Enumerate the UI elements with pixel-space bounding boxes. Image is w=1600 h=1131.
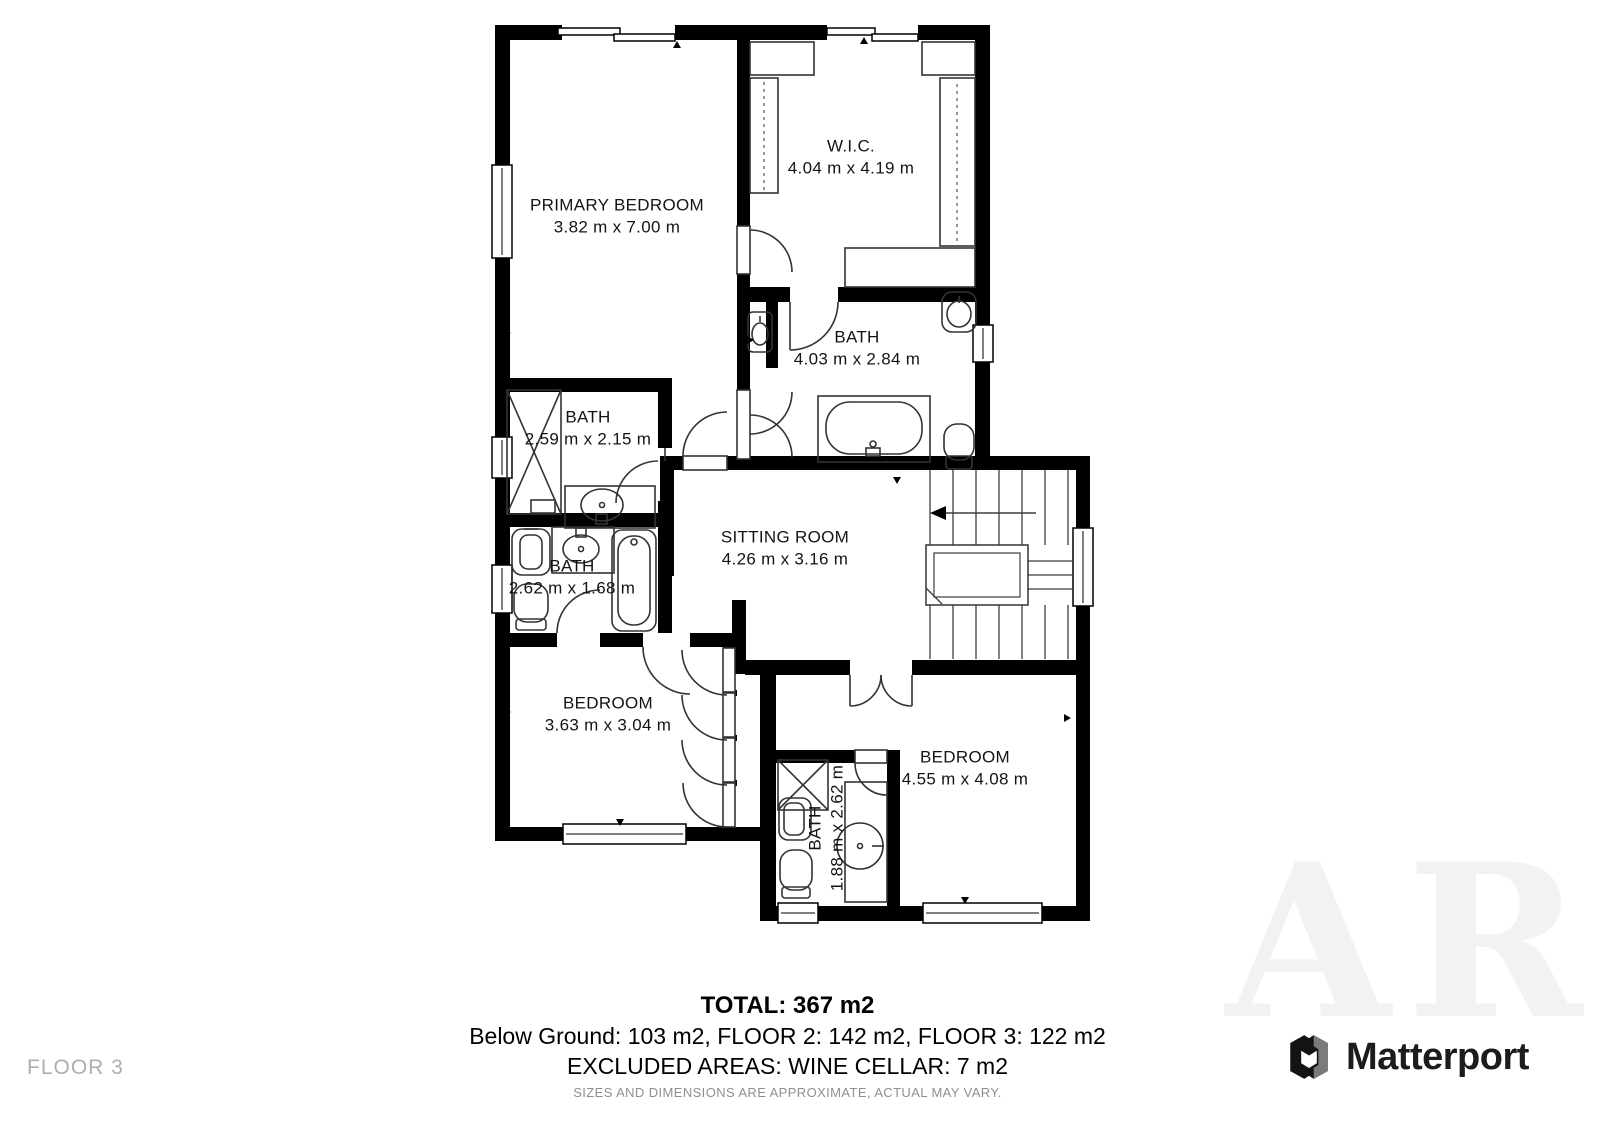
room-name: BATH (509, 555, 635, 577)
door-ensuite-bath (855, 750, 887, 795)
floor-number-label: FLOOR 3 (27, 1056, 124, 1080)
total-area-text: TOTAL: 367 m2 (0, 992, 1575, 1020)
closet-doors-bedroom-left (682, 648, 735, 827)
window-bath-right (973, 325, 993, 362)
room-dims: 2.59 m x 2.15 m (525, 428, 651, 450)
sliding-door-primary-top (558, 28, 675, 41)
room-label-bath-small: BATH 2.62 m x 1.68 m (509, 555, 635, 599)
bathtub-icon-main (818, 396, 930, 462)
room-name: BEDROOM (545, 692, 671, 714)
door-bath-shower-room (616, 448, 665, 503)
window-primary-left (492, 165, 512, 258)
room-label-bath-shower: BATH 2.59 m x 2.15 m (525, 406, 651, 450)
room-dims: 4.26 m x 3.16 m (721, 548, 849, 570)
stairs-direction-arrow (930, 506, 1036, 520)
door-wic (737, 226, 792, 274)
floor-plan-page: ARE (0, 0, 1600, 1131)
room-name: BATH (804, 765, 826, 891)
room-dims: 1.88 m x 2.62 m (826, 765, 848, 891)
double-door-bath-main (737, 390, 792, 459)
room-name: SITTING ROOM (721, 526, 849, 548)
room-label-primary-bedroom: PRIMARY BEDROOM 3.82 m x 7.00 m (530, 194, 704, 238)
room-name: W.I.C. (788, 135, 914, 157)
staircase (926, 470, 1074, 659)
disclaimer-text: SIZES AND DIMENSIONS ARE APPROXIMATE, AC… (0, 1085, 1575, 1100)
matterport-logo: Matterport (1284, 1032, 1529, 1082)
room-name: BATH (794, 326, 920, 348)
door-hall-to-sitting (683, 412, 727, 470)
room-dims: 4.55 m x 4.08 m (902, 768, 1028, 790)
window-bedroom-right-bottom (923, 903, 1042, 923)
double-door-bedroom-right (850, 675, 912, 706)
room-dims: 3.63 m x 3.04 m (545, 714, 671, 736)
window-bedroom-left-bottom (563, 824, 686, 844)
room-label-wic: W.I.C. 4.04 m x 4.19 m (788, 135, 914, 179)
window-stairs-right (1073, 528, 1093, 606)
matterport-logo-icon (1284, 1032, 1334, 1082)
room-name: BATH (525, 406, 651, 428)
room-dims: 4.03 m x 2.84 m (794, 348, 920, 370)
room-dims: 2.62 m x 1.68 m (509, 577, 635, 599)
room-name: PRIMARY BEDROOM (530, 194, 704, 216)
counter-bath-4 (845, 782, 887, 902)
room-label-bedroom-left: BEDROOM 3.63 m x 3.04 m (545, 692, 671, 736)
matterport-wordmark: Matterport (1346, 1036, 1529, 1079)
room-label-bedroom-right: BEDROOM 4.55 m x 4.08 m (902, 746, 1028, 790)
room-dims: 4.04 m x 4.19 m (788, 157, 914, 179)
room-dims: 3.82 m x 7.00 m (530, 216, 704, 238)
window-bath-bottom (778, 903, 818, 923)
room-label-bath-main: BATH 4.03 m x 2.84 m (794, 326, 920, 370)
window-bath-left-upper (492, 437, 512, 478)
room-label-sitting-room: SITTING ROOM 4.26 m x 3.16 m (721, 526, 849, 570)
room-name: BEDROOM (902, 746, 1028, 768)
sliding-door-wic-top (827, 28, 918, 41)
room-label-bath-ensuite: BATH 1.88 m x 2.62 m (804, 765, 848, 891)
